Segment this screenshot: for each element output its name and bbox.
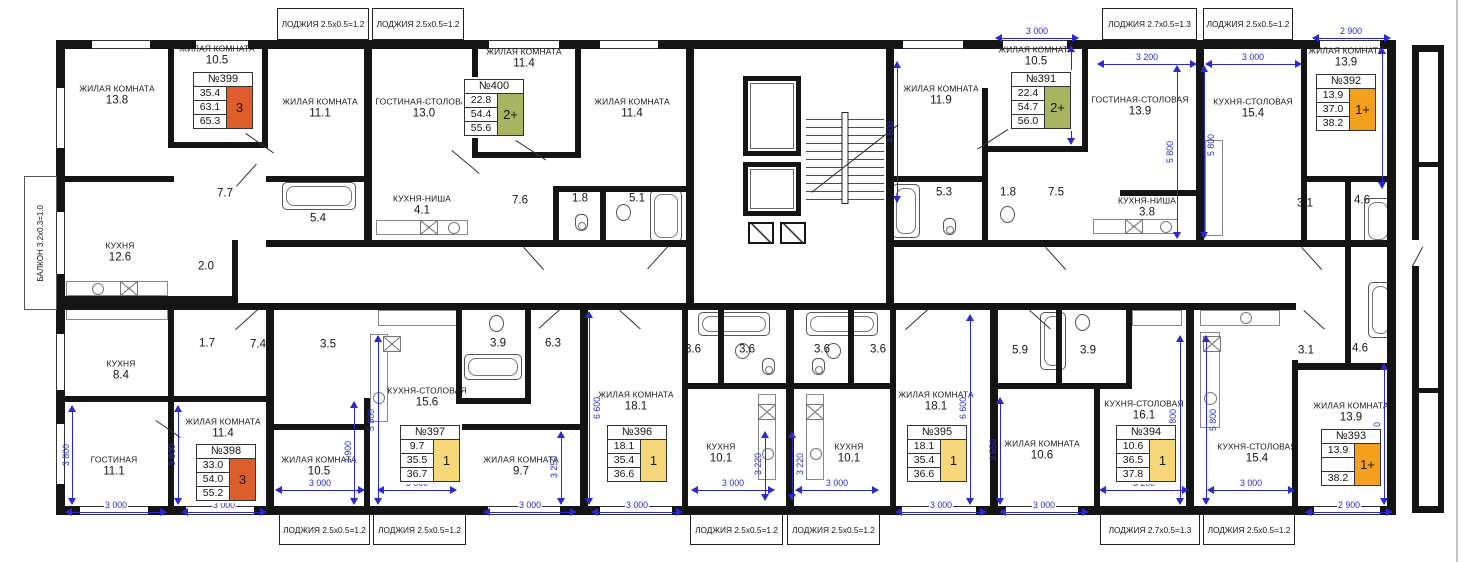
stove-icon: [383, 336, 401, 352]
room-area: 3.1: [1297, 198, 1313, 210]
room-area: 7.4: [250, 339, 266, 351]
room-name: КУХНЯ: [707, 442, 736, 452]
wall: [682, 383, 792, 389]
toilet-icon: [575, 214, 588, 231]
dimension-line: [72, 406, 73, 504]
stair-rail: [842, 112, 849, 204]
room-label: ЖИЛАЯ КОМНАТА11.9: [903, 84, 979, 107]
room-area: 10.5: [998, 56, 1074, 68]
wall: [682, 310, 688, 506]
dimension-line: [1000, 512, 1088, 513]
adjacent-section-wall: [1438, 45, 1444, 513]
room-label: 1.8: [1000, 186, 1016, 199]
dimension-label: 3 250: [549, 456, 559, 478]
room-name: КУХНЯ: [835, 442, 864, 452]
room-name: КУХНЯ-СТОЛОВАЯ: [1217, 442, 1296, 452]
room-area: 11.9: [903, 95, 979, 107]
room-name: ЖИЛАЯ КОМНАТА: [594, 97, 670, 107]
apartment-total-area: 65.3: [194, 115, 226, 128]
wall: [525, 310, 531, 402]
room-area: 18.1: [598, 401, 674, 413]
room-area: 15.4: [1217, 453, 1296, 465]
wall: [1082, 40, 1088, 152]
loggia-box: ЛОДЖИЯ 2.5х0.5=1.2: [277, 8, 369, 40]
dimension-line: [1208, 490, 1294, 491]
room-area: 15.4: [1213, 108, 1292, 120]
loggia-box: ЛОДЖИЯ 2.5х0.5=1.2: [787, 514, 880, 545]
room-name: ЖИЛАЯ КОМНАТА: [1004, 439, 1080, 449]
room-label: 6.3: [545, 337, 561, 350]
room-label: ЖИЛАЯ КОМНАТА10.5: [179, 44, 255, 67]
room-label: КУХНЯ10.1: [707, 442, 736, 465]
room-area: 6.3: [545, 338, 561, 350]
dimension-line: [178, 406, 179, 504]
dimension-label: 3 000: [308, 478, 332, 488]
loggia-box: ЛОДЖИЯ 2.5х0.5=1.2: [279, 514, 370, 545]
window-opening: [56, 88, 65, 148]
room-label: 3.1: [1298, 344, 1314, 357]
room-label: 5.3: [936, 186, 952, 199]
room-name: КУХНЯ-НИША: [1118, 196, 1176, 206]
room-area: 7.7: [217, 188, 233, 200]
dimension-label: 3 000: [721, 478, 745, 488]
apartment-rooms-badge: 1: [1150, 440, 1175, 481]
dimension-line: [792, 432, 793, 500]
room-name: КУХНЯ: [106, 241, 135, 251]
wall: [472, 152, 581, 158]
wall: [1186, 310, 1194, 506]
loggia-label: ЛОДЖИЯ 2.5х0.5=1.2: [792, 525, 875, 535]
door-swing: [523, 247, 544, 270]
image-edge-line: [1456, 0, 1458, 562]
counter-sink-icon: [448, 222, 460, 234]
sink-icon: [1000, 206, 1015, 223]
room-area: 13.8: [79, 95, 155, 107]
apartment-living-area: 10.6: [1117, 440, 1149, 454]
room-name: КУХНЯ-НИША: [393, 194, 451, 204]
wall: [266, 240, 690, 247]
dimension-line: [354, 402, 355, 504]
room-label: 1.7: [199, 337, 215, 350]
dimension-line: [1204, 66, 1205, 238]
wall: [580, 310, 588, 506]
dimension-line: [1177, 66, 1178, 238]
dimension-line: [182, 512, 266, 513]
dimension-line: [970, 315, 971, 504]
wall: [575, 49, 581, 158]
room-area: 4.6: [1352, 343, 1368, 355]
dimension-line: [692, 490, 774, 491]
wall: [1345, 247, 1351, 363]
apartment-living-area: 18.1: [608, 440, 640, 454]
wall: [56, 40, 1396, 49]
wall: [986, 146, 1088, 152]
wall: [1126, 310, 1132, 383]
wall: [886, 40, 894, 310]
stove-icon: [758, 404, 776, 420]
room-area: 3.9: [490, 338, 506, 350]
dimension-line: [896, 512, 986, 513]
room-label: КУХНЯ12.6: [106, 241, 135, 264]
bathtub-icon: [806, 312, 878, 336]
room-label: ЖИЛАЯ КОМНАТА11.1: [282, 97, 358, 120]
balcony-label: БАЛКОН 3.2х0.3=1.0: [36, 205, 45, 282]
toilet-icon: [762, 358, 775, 375]
kitchen-counter: [1132, 310, 1182, 326]
wall: [894, 176, 982, 182]
apartment-area: 35.5: [401, 454, 433, 468]
apartment-area: 36.5: [1117, 454, 1149, 468]
apartment-total-area: 55.2: [197, 487, 229, 500]
room-name: КУХНЯ: [107, 359, 136, 369]
room-area: 13.0: [375, 108, 472, 120]
wall: [461, 424, 586, 430]
wall: [168, 310, 174, 506]
wall: [56, 296, 238, 303]
dimension-label: 2 900: [1339, 26, 1363, 36]
apartment-area: 54.0: [197, 473, 229, 487]
room-label: КУХНЯ-СТОЛОВАЯ15.4: [1217, 442, 1296, 465]
service-shaft: [780, 222, 806, 244]
dimension-label: 2 900: [1337, 500, 1361, 510]
counter-sink-icon: [1240, 312, 1252, 324]
apartment-living-area: 13.9: [1317, 89, 1349, 103]
apartment-rooms-badge: 2+: [1045, 87, 1070, 128]
room-label: 5.1: [629, 192, 645, 205]
dimension-label: 3 000: [625, 500, 649, 510]
apartment-area: 37.0: [1317, 103, 1349, 117]
window-opening: [92, 40, 150, 49]
apartment-living-area: 9.7: [401, 440, 433, 454]
apartment-living-area: 18.1: [908, 440, 940, 454]
dimension-line: [592, 512, 682, 513]
wall: [232, 240, 238, 300]
dimension-line: [1180, 336, 1181, 504]
wall: [718, 310, 724, 383]
room-label: ГОСТИНАЯ-СТОЛОВАЯ13.9: [1091, 95, 1188, 118]
room-area: 5.3: [936, 187, 952, 199]
room-name: ЖИЛАЯ КОМНАТА: [79, 84, 155, 94]
room-area: 1.8: [572, 193, 588, 205]
door-swing: [1045, 247, 1066, 270]
room-area: 9.7: [483, 466, 559, 478]
adjacent-section-wall: [1412, 388, 1444, 393]
room-label: ГОСТИНАЯ-СТОЛОВАЯ13.0: [375, 97, 472, 120]
loggia-label: ЛОДЖИЯ 2.5х0.5=1.2: [283, 525, 366, 535]
dimension-line: [1382, 48, 1383, 188]
counter-sink-icon: [1160, 221, 1172, 233]
apartment-rooms-badge: 3: [230, 459, 255, 500]
room-area: 3.9: [1080, 345, 1096, 357]
dimension-label: 6 600: [958, 397, 968, 419]
wall: [553, 186, 559, 244]
door-swing: [905, 309, 928, 330]
window-opening: [600, 40, 658, 49]
room-label: ЖИЛАЯ КОМНАТА13.8: [79, 84, 155, 107]
door-swing: [539, 309, 560, 328]
room-name: КУХНЯ-СТОЛОВАЯ: [1213, 97, 1292, 107]
dimension-line: [1071, 46, 1072, 144]
loggia-box: ЛОДЖИЯ 2.5х0.5=1.2: [372, 8, 464, 40]
apartment-number: №394: [1117, 426, 1175, 440]
wall: [266, 176, 370, 182]
room-label: 3.6: [739, 343, 755, 356]
wall: [996, 383, 1132, 389]
dimension-line: [796, 490, 878, 491]
apartment-card: №394 10.636.537.8 1: [1116, 425, 1176, 482]
apartment-living-area: 35.4: [194, 87, 226, 101]
dimension-line: [1206, 336, 1207, 504]
dimension-label: 6 600: [592, 397, 602, 419]
door-swing: [1301, 247, 1322, 270]
door-swing: [235, 309, 258, 330]
sink-icon: [616, 204, 631, 221]
room-area: 11.4: [594, 108, 670, 120]
door-swing: [619, 310, 640, 329]
loggia-label: ЛОДЖИЯ 2.7х0.5=1.3: [1109, 525, 1192, 535]
sink-icon: [1075, 314, 1090, 331]
room-label: 3.6: [870, 343, 886, 356]
room-area: 10.6: [1004, 450, 1080, 462]
stove-icon: [1125, 219, 1143, 234]
apartment-number: №391: [1012, 73, 1070, 87]
room-area: 11.4: [185, 428, 261, 440]
door-swing: [1303, 310, 1324, 329]
room-area: 11.1: [91, 466, 138, 478]
room-name: ГОСТИНАЯ-СТОЛОВАЯ: [375, 97, 472, 107]
room-name: ГОСТИНАЯ: [91, 455, 138, 465]
room-area: 3.6: [685, 344, 701, 356]
stove-icon: [120, 281, 138, 296]
apartment-card: №399 35.463.165.3 3: [193, 72, 253, 129]
kitchen-counter: [66, 281, 168, 296]
room-label: ГОСТИНАЯ11.1: [91, 455, 138, 478]
apartment-number: №395: [908, 426, 966, 440]
loggia-label: ЛОДЖИЯ 2.5х0.5=1.2: [695, 525, 778, 535]
dimension-label: 3 000: [104, 500, 128, 510]
room-label: ЖИЛАЯ КОМНАТА9.7: [483, 455, 559, 478]
wall: [600, 186, 606, 244]
apartment-rooms-badge: 1: [434, 440, 459, 481]
room-area: 10.1: [707, 453, 736, 465]
room-label: КУХНЯ8.4: [107, 359, 136, 382]
room-area: 10.5: [281, 466, 357, 478]
room-name: ЖИЛАЯ КОМНАТА: [483, 455, 559, 465]
dimension-label: 4 600: [885, 121, 895, 143]
room-label: 3.5: [320, 338, 336, 351]
door-swing: [647, 246, 668, 269]
apartment-rooms-badge: 1+: [1355, 444, 1380, 485]
room-area: 5.4: [310, 213, 326, 225]
room-label: ЖИЛАЯ КОМНАТА13.9: [1308, 46, 1384, 69]
dimension-label: 5 800: [1208, 409, 1218, 431]
staircase: [806, 112, 884, 204]
room-label: 4.6: [1354, 194, 1370, 207]
apartment-living-area: 13.9: [1322, 444, 1354, 458]
apartment-area: [1322, 458, 1354, 472]
room-label: ЖИЛАЯ КОМНАТА11.4: [486, 47, 562, 70]
room-label: 3.9: [1080, 344, 1096, 357]
room-area: 1.7: [199, 338, 215, 350]
dimension-label: 3 000: [1239, 478, 1263, 488]
apartment-living-area: 22.4: [1012, 87, 1044, 101]
room-label: 5.9: [1012, 344, 1028, 357]
apartment-number: №398: [197, 445, 255, 459]
apartment-number: №396: [608, 426, 666, 440]
apartment-card: №396 18.135.436.6 1: [607, 425, 667, 482]
dimension-label: 5 800: [1206, 134, 1216, 156]
loggia-box: ЛОДЖИЯ 2.5х0.5=1.2: [690, 514, 783, 545]
room-area: 3.6: [739, 344, 755, 356]
dimension-label: 3 000: [1241, 52, 1265, 62]
room-name: ЖИЛАЯ КОМНАТА: [903, 84, 979, 94]
room-label: 7.5: [1048, 186, 1064, 199]
dimension-line: [561, 432, 562, 504]
room-label: 4.6: [1352, 342, 1368, 355]
bathtub-icon: [698, 312, 770, 336]
apartment-number: №400: [465, 80, 523, 94]
room-area: 7.6: [512, 195, 528, 207]
wall: [364, 40, 372, 243]
room-label: 3.9: [490, 337, 506, 350]
room-area: 3.6: [870, 344, 886, 356]
elevator-shaft: [743, 162, 801, 216]
wall: [456, 398, 531, 404]
room-label: 1.8: [572, 192, 588, 205]
dimension-label: 3 220: [795, 453, 805, 475]
dimension-label: 3 000: [212, 500, 236, 510]
counter-sink-icon: [810, 448, 822, 460]
room-label: 5.4: [310, 212, 326, 225]
dimension-line: [1384, 364, 1385, 504]
room-label: 7.6: [512, 194, 528, 207]
loggia-label: ЛОДЖИЯ 2.5х0.5=1.2: [377, 19, 460, 29]
loggia-box: ЛОДЖИЯ 2.7х0.5=1.3: [1100, 514, 1200, 545]
room-area: 7.5: [1048, 187, 1064, 199]
bathtub-icon: [282, 182, 356, 210]
dimension-line: [1306, 512, 1392, 513]
loggia-label: ЛОДЖИЯ 2.5х0.5=1.2: [378, 525, 461, 535]
apartment-total-area: 36.7: [401, 468, 433, 481]
room-name: КУХНЯ-СТОЛОВАЯ: [387, 386, 466, 396]
apartment-area: 54.4: [465, 108, 497, 122]
bathtub-icon: [1040, 312, 1066, 370]
apartment-total-area: 36.6: [608, 468, 640, 481]
toilet-icon: [812, 358, 825, 375]
apartment-rooms-badge: 2+: [498, 94, 523, 135]
apartment-card: №393 13.938.2 1+: [1321, 429, 1381, 486]
wall: [1056, 310, 1062, 383]
dimension-line: [1100, 490, 1188, 491]
wall: [56, 176, 174, 182]
room-area: 12.6: [106, 252, 135, 264]
counter-sink-icon: [373, 392, 385, 404]
room-label: 2.0: [198, 260, 214, 273]
room-label: 3.6: [685, 343, 701, 356]
apartment-area: 35.4: [608, 454, 640, 468]
apartment-total-area: 36.6: [908, 468, 940, 481]
adjacent-section-wall: [1412, 45, 1419, 513]
apartment-card: №391 22.454.756.0 2+: [1011, 72, 1071, 129]
apartment-number: №399: [194, 73, 252, 87]
apartment-card: №395 18.135.436.6 1: [907, 425, 967, 482]
dimension-line: [897, 62, 898, 202]
adjacent-section-wall: [1412, 162, 1444, 167]
loggia-box: ЛОДЖИЯ 2.7х0.5=1.3: [1102, 8, 1197, 40]
dimension-line: [484, 512, 576, 513]
dimension-label: 3 200: [1135, 52, 1159, 62]
apartment-card: №398 33.054.055.2 3: [196, 444, 256, 501]
dimension-label: 3 900: [343, 441, 353, 463]
door-swing: [236, 164, 257, 187]
dimension-label: 3 800: [61, 444, 71, 466]
dimension-line: [378, 336, 379, 504]
dimension-label: 3 000: [518, 500, 542, 510]
sink-icon: [489, 315, 504, 332]
apartment-living-area: 22.8: [465, 94, 497, 108]
dimension-label: 3 800: [167, 444, 177, 466]
loggia-label: ЛОДЖИЯ 2.5х0.5=1.2: [1207, 19, 1290, 29]
room-name: ЖИЛАЯ КОМНАТА: [185, 417, 261, 427]
dimension-line: [1206, 64, 1301, 65]
dimension-line: [276, 490, 364, 491]
room-label: 7.7: [217, 187, 233, 200]
apartment-area: 35.4: [908, 454, 940, 468]
dimension-label: 3 000: [1032, 500, 1056, 510]
room-label: 3.1: [1297, 197, 1313, 210]
room-name: ЖИЛАЯ КОМНАТА: [598, 390, 674, 400]
wall: [886, 240, 1387, 247]
room-area: 11.4: [486, 58, 562, 70]
apartment-number: №392: [1317, 75, 1375, 89]
room-name: ЖИЛАЯ КОМНАТА: [282, 97, 358, 107]
apartment-rooms-badge: 1: [941, 440, 966, 481]
wall: [982, 88, 988, 246]
loggia-label: ЛОДЖИЯ 2.7х0.5=1.3: [1108, 19, 1191, 29]
room-area: 11.1: [282, 108, 358, 120]
window-opening: [903, 40, 963, 49]
room-label: КУХНЯ10.1: [835, 442, 864, 465]
room-name: ЖИЛАЯ КОМНАТА: [998, 45, 1074, 55]
loggia-box: ЛОДЖИЯ 2.5х0.5=1.2: [1203, 8, 1293, 40]
room-label: КУХНЯ-СТОЛОВАЯ15.6: [387, 386, 466, 409]
balcony-box: БАЛКОН 3.2х0.3=1.0: [24, 176, 57, 310]
apartment-rooms-badge: 3: [227, 87, 252, 128]
room-area: 5.9: [1012, 345, 1028, 357]
counter-sink-icon: [762, 448, 774, 460]
room-area: 10.1: [835, 453, 864, 465]
loggia-box: ЛОДЖИЯ 2.5х0.5=1.2: [1203, 514, 1295, 545]
wall: [168, 40, 174, 148]
wall: [168, 142, 268, 148]
apartment-total-area: 37.8: [1117, 468, 1149, 481]
dimension-line: [378, 490, 456, 491]
wall: [262, 40, 268, 148]
loggia-label: ЛОДЖИЯ 2.5х0.5=1.2: [282, 19, 365, 29]
dimension-label: 5 800: [366, 409, 376, 431]
room-label: 7.4: [250, 338, 266, 351]
dimension-line: [66, 512, 166, 513]
wall: [1387, 40, 1396, 515]
apartment-total-area: 38.2: [1322, 472, 1354, 485]
apartment-area: 54.7: [1012, 101, 1044, 115]
wall: [990, 310, 998, 506]
wall: [56, 303, 1296, 310]
room-label: ЖИЛАЯ КОМНАТА18.1: [598, 390, 674, 413]
floor-plan: БАЛКОН 3.2х0.3=1.0 ЛОДЖИЯ 2.5х0.5=1.2 ЛО…: [0, 0, 1469, 562]
dimension-label: 3 220: [753, 453, 763, 475]
apartment-card: №400 22.854.455.6 2+: [464, 79, 524, 136]
